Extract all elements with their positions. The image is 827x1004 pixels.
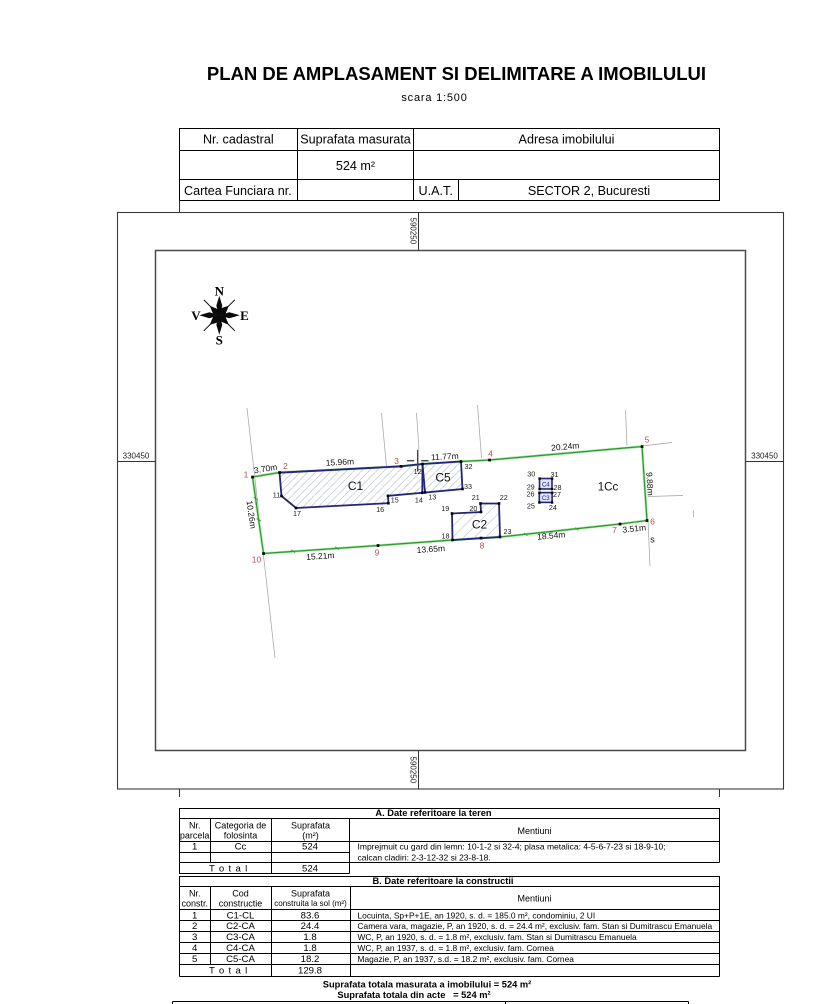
svg-text:16: 16 [376,505,384,514]
svg-text:Cod: Cod [232,889,249,899]
svg-text:Locuinta, Sp+P+1E, an 1920, s.: Locuinta, Sp+P+1E, an 1920, s. d. = 185.… [358,910,596,920]
svg-text:Mentiuni: Mentiuni [517,894,551,904]
svg-text:Suprafata totala masurata a im: Suprafata totala masurata a imobilului =… [323,980,531,990]
svg-text:14: 14 [415,496,423,505]
svg-text:Cartea Funciara nr.: Cartea Funciara nr. [184,184,292,198]
svg-text:constructie: constructie [219,899,263,909]
svg-text:8: 8 [480,541,485,551]
svg-text:WC, P, an 1937, s. d. = 1.8 m²: WC, P, an 1937, s. d. = 1.8 m², exclusiv… [358,943,555,953]
svg-text:32: 32 [465,462,473,471]
svg-text:18: 18 [442,532,450,541]
svg-text:11.77m: 11.77m [431,451,459,462]
svg-text:T o t a l: T o t a l [209,863,248,874]
svg-text:1.8: 1.8 [303,932,316,943]
svg-text:13.65m: 13.65m [416,543,445,555]
svg-text:20: 20 [469,504,477,513]
svg-text:19: 19 [441,504,449,513]
svg-text:33: 33 [464,482,472,491]
svg-text:590250: 590250 [409,218,418,245]
svg-text:4: 4 [192,943,198,954]
svg-text:folosinta: folosinta [224,831,258,841]
svg-text:E: E [240,308,249,323]
svg-text:12: 12 [414,467,422,476]
svg-text:22: 22 [500,493,508,502]
svg-text:Nr. cadastral: Nr. cadastral [203,133,274,147]
svg-text:C2: C2 [472,518,488,532]
svg-text:C3-CA: C3-CA [226,932,255,943]
svg-text:28: 28 [554,483,562,492]
svg-text:C4-CA: C4-CA [226,943,255,954]
svg-text:C5: C5 [435,471,451,485]
svg-text:590250: 590250 [409,757,418,784]
svg-text:Suprafata: Suprafata [291,821,330,831]
svg-text:524: 524 [302,863,319,874]
svg-text:10: 10 [252,555,262,565]
svg-text:Imprejmuit cu gard din lemn: 1: Imprejmuit cu gard din lemn: 10-1-2 si 3… [358,842,666,852]
svg-text:5: 5 [645,435,650,445]
svg-text:129.8: 129.8 [298,966,322,977]
svg-text:Nr.: Nr. [189,821,201,831]
svg-text:13: 13 [428,492,436,501]
svg-text:Suprafata masurata: Suprafata masurata [300,133,411,147]
svg-text:C4: C4 [542,483,550,489]
svg-text:17: 17 [293,509,301,518]
svg-text:A. Date referitoare la teren: A. Date referitoare la teren [375,808,492,818]
svg-text:C2-CA: C2-CA [226,921,255,932]
svg-text:18.2: 18.2 [301,954,320,965]
svg-text:Cc: Cc [235,842,247,853]
svg-text:1: 1 [244,470,249,480]
svg-text:parcela: parcela [180,831,210,841]
svg-text:Camera vara, magazie, P, an 19: Camera vara, magazie, P, an 1920, s. d. … [358,921,713,931]
svg-text:Adresa imobilului: Adresa imobilului [519,133,615,147]
svg-text:29: 29 [527,483,535,492]
svg-text:Magazie, P, an 1937, s.d. = 18: Magazie, P, an 1937, s.d. = 18.2 m², exc… [358,954,575,964]
svg-text:1: 1 [192,842,197,853]
svg-text:25: 25 [527,501,535,510]
svg-text:83.6: 83.6 [301,910,320,921]
svg-text:1: 1 [192,910,197,921]
svg-text:330450: 330450 [123,452,150,461]
svg-text:24: 24 [549,503,557,512]
svg-text:1Cc: 1Cc [598,482,619,494]
svg-text:Suprafata: Suprafata [291,889,330,899]
svg-text:21: 21 [472,493,480,502]
svg-text:S: S [216,333,223,348]
svg-text:(m²): (m²) [302,831,319,841]
svg-text:constr.: constr. [181,899,208,909]
svg-text:construita la sol (m²): construita la sol (m²) [274,899,347,908]
svg-text:4: 4 [488,449,493,459]
svg-text:31: 31 [551,470,559,479]
svg-text:C1: C1 [348,479,364,493]
svg-text:3: 3 [192,932,197,943]
svg-text:Categoria de: Categoria de [215,821,267,831]
svg-text:11: 11 [273,491,280,500]
svg-text:SECTOR 2, Bucuresti: SECTOR 2, Bucuresti [528,184,650,198]
svg-text:524: 524 [302,842,319,853]
svg-text:calcan cladiri: 2-3-12-32 si 2: calcan cladiri: 2-3-12-32 si 23-8-18. [358,853,491,863]
svg-text:524 m²: 524 m² [336,159,375,173]
svg-text:3: 3 [394,456,399,466]
svg-text:15.96m: 15.96m [325,456,354,467]
svg-text:N: N [215,284,225,299]
svg-text:330450: 330450 [751,452,778,461]
svg-text:15: 15 [391,496,399,505]
svg-text:T o t a l: T o t a l [209,966,248,977]
svg-text:9.88m: 9.88m [644,472,655,496]
svg-text:WC, P, an 1920, s. d. = 1.8 m²: WC, P, an 1920, s. d. = 1.8 m², exclusiv… [358,932,638,942]
svg-text:5: 5 [192,954,197,965]
svg-text:Nr.: Nr. [189,889,201,899]
svg-text:15.21m: 15.21m [306,550,335,562]
svg-text:C5-CA: C5-CA [226,954,255,965]
svg-text:U.A.T.: U.A.T. [419,184,453,198]
svg-text:PLAN DE AMPLASAMENT SI DELIMIT: PLAN DE AMPLASAMENT SI DELIMITARE A IMOB… [207,63,706,84]
svg-text:6: 6 [650,517,655,527]
svg-text:1.8: 1.8 [303,943,316,954]
svg-text:Suprafata totala din acte =: Suprafata totala din acte = 524 m² [337,990,490,1000]
svg-text:2: 2 [192,921,197,932]
svg-text:9: 9 [375,548,380,558]
svg-text:C3: C3 [542,496,550,502]
svg-text:B. Date referitoare la constru: B. Date referitoare la constructii [372,876,513,886]
svg-text:scara 1:500: scara 1:500 [401,92,467,104]
svg-text:C1-CL: C1-CL [227,910,255,921]
svg-text:24.4: 24.4 [301,921,320,932]
svg-text:23: 23 [504,527,512,536]
svg-text:Mentiuni: Mentiuni [517,826,551,836]
svg-text:2: 2 [283,461,288,471]
svg-text:V: V [191,308,201,323]
svg-text:30: 30 [527,470,535,479]
svg-text:7: 7 [612,525,617,535]
svg-text:s: s [650,535,655,545]
